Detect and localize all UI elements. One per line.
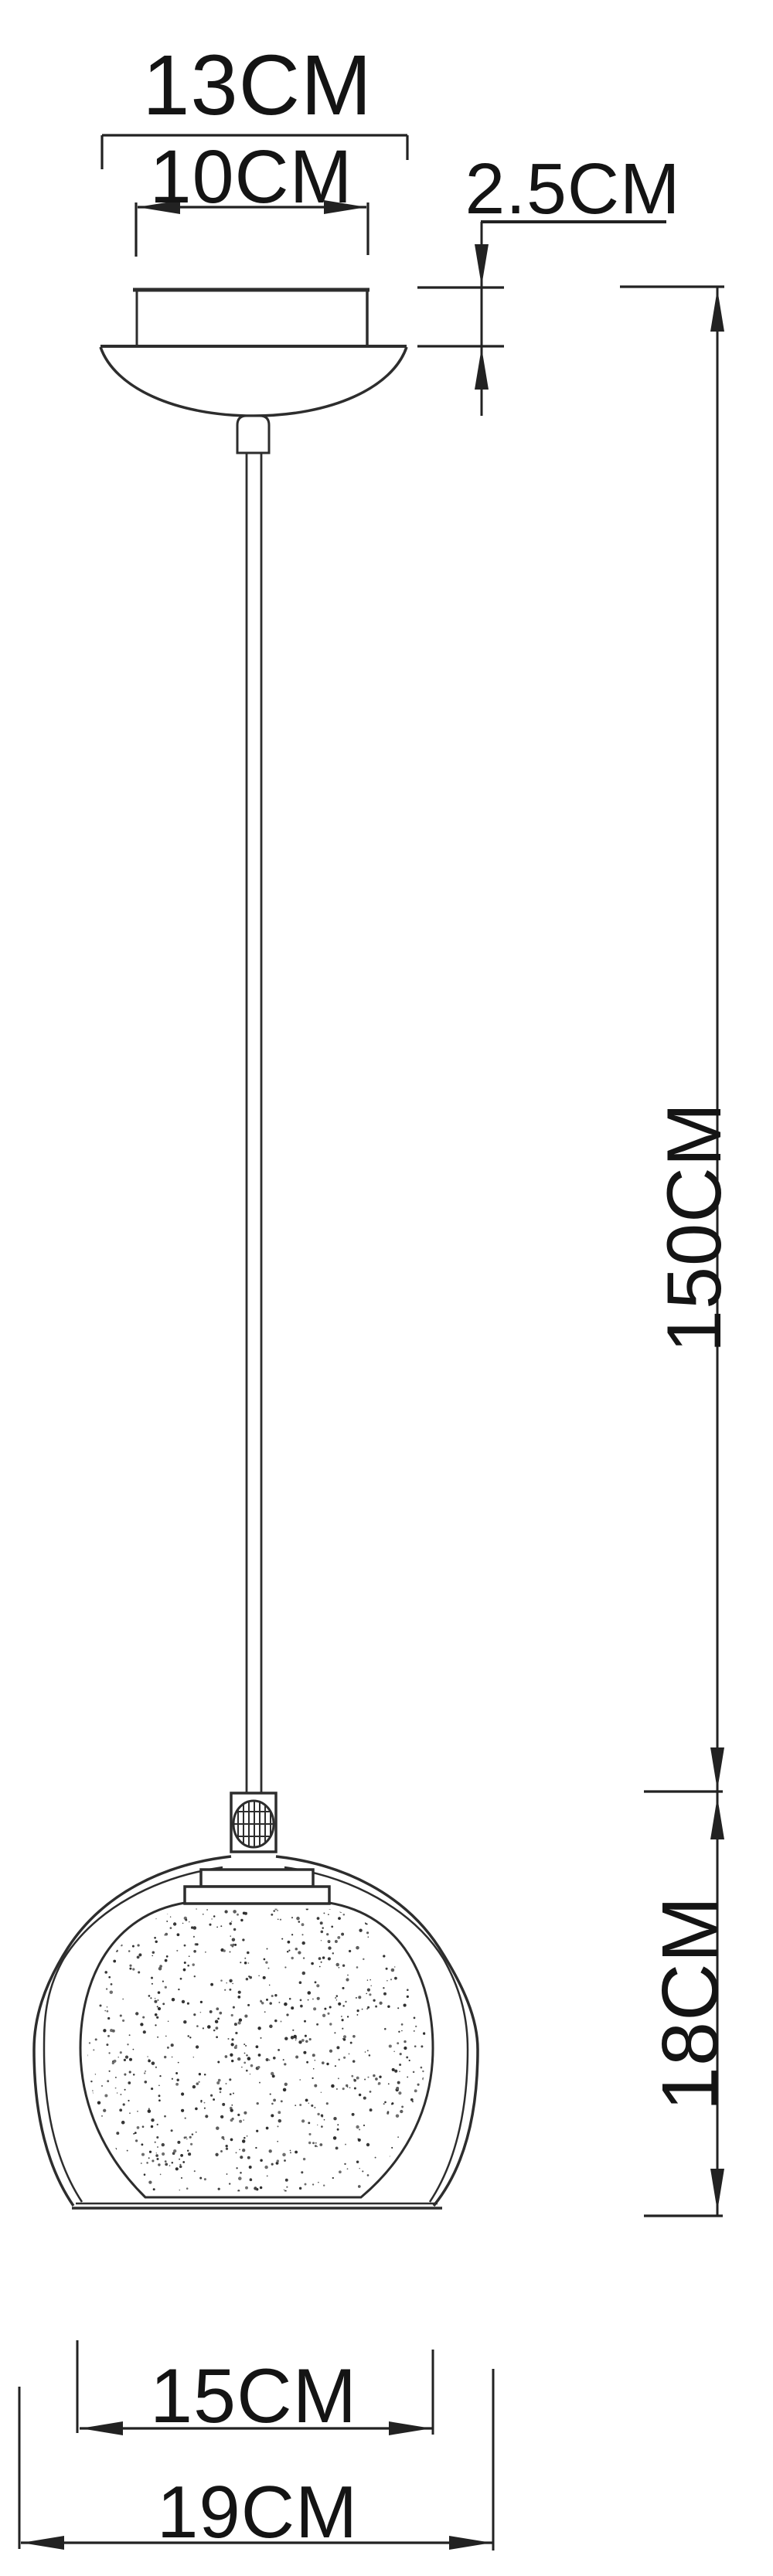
dim-label-shade-height: 18CM: [648, 1849, 733, 2158]
lamp-dimension-diagram: 13CM 10CM 2.5CM 150CM 18CM 15CM 19CM: [0, 0, 773, 2576]
dim-19cm-arrow-right: [449, 2536, 492, 2550]
dim-label-canopy-height: 2.5CM: [438, 148, 708, 229]
dim-150cm-arrow-up: [710, 289, 724, 332]
dim-label-canopy-outer-width: 13CM: [103, 39, 412, 131]
dim-150cm-arrow-down: [710, 1747, 724, 1790]
canopy: [100, 290, 407, 453]
dim-150cm: [620, 287, 724, 1792]
lamp-shade: [34, 1793, 478, 2208]
socket-collar-lower: [185, 1887, 329, 1904]
canopy-bowl: [100, 347, 407, 416]
dim-2-5cm-arrow-down: [475, 244, 489, 286]
dim-2-5cm: [417, 222, 666, 416]
cord-grip-connector: [237, 416, 269, 453]
dim-label-cord-length: 150CM: [652, 1073, 737, 1382]
dim-18cm-arrow-up: [710, 1797, 724, 1839]
dim-19cm-arrow-left: [22, 2536, 64, 2550]
socket-collar-upper: [201, 1870, 313, 1887]
dim-label-shade-outer-width: 19CM: [103, 2472, 412, 2554]
dim-label-shade-inner-width: 15CM: [99, 2354, 408, 2438]
dim-2-5cm-arrow-up: [475, 348, 489, 390]
dim-label-canopy-inner-width: 10CM: [97, 136, 406, 218]
suspension-cord: [247, 453, 261, 1795]
dim-18cm-arrow-down: [710, 2169, 724, 2211]
